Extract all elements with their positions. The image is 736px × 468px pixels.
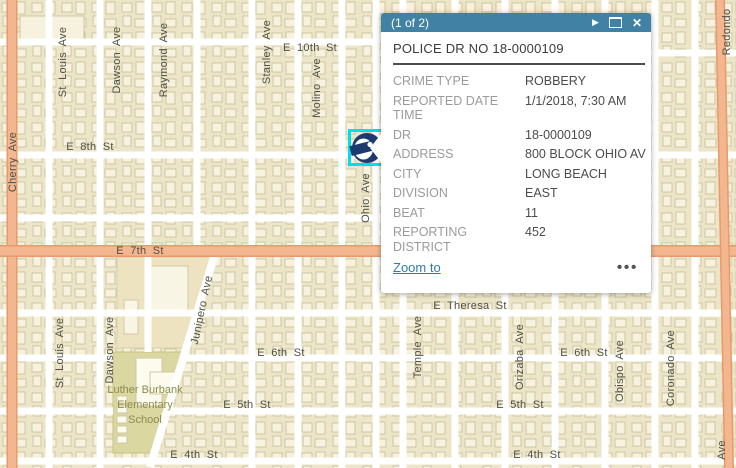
field-value: ROBBERY — [525, 74, 646, 89]
field-value: 1/1/2018, 7:30 AM — [525, 94, 646, 123]
field-label: REPORTED DATETIME — [393, 94, 525, 123]
incident-popup: (1 of 2) ▶ ✕ POLICE DR NO 18-0000109 CRI… — [381, 13, 651, 293]
field-label: CITY — [393, 167, 525, 182]
field-value: 18-0000109 — [525, 128, 646, 143]
zoom-to-link[interactable]: Zoom to — [393, 260, 441, 275]
next-feature-icon[interactable]: ▶ — [592, 18, 599, 27]
popup-callout-arrow — [370, 134, 381, 162]
popup-pagination: (1 of 2) — [391, 16, 429, 30]
field-label: REPORTING DISTRICT — [393, 225, 525, 254]
field-value: 452 — [525, 225, 646, 254]
title-divider — [393, 63, 645, 65]
field-label: CRIME TYPE — [393, 74, 525, 89]
popup-body: POLICE DR NO 18-0000109 CRIME TYPEROBBER… — [381, 32, 651, 284]
field-label: DIVISION — [393, 186, 525, 201]
field-label: DR — [393, 128, 525, 143]
field-value: LONG BEACH — [525, 167, 646, 182]
maximize-icon[interactable] — [609, 17, 622, 28]
popup-header: (1 of 2) ▶ ✕ — [381, 13, 651, 32]
popup-title: POLICE DR NO 18-0000109 — [393, 41, 645, 56]
attribute-table: CRIME TYPEROBBERYREPORTED DATETIME1/1/20… — [393, 74, 645, 254]
popup-footer: Zoom to ••• — [393, 260, 638, 275]
field-label: ADDRESS — [393, 147, 525, 162]
map-canvas[interactable]: Cherry AveSt Louis AveDawson AveRaymond … — [0, 0, 736, 468]
field-value: 11 — [525, 206, 646, 221]
field-value: EAST — [525, 186, 646, 201]
close-icon[interactable]: ✕ — [632, 17, 642, 29]
field-label: BEAT — [393, 206, 525, 221]
more-options-button[interactable]: ••• — [617, 263, 638, 273]
field-value: 800 BLOCK OHIO AV — [525, 147, 646, 162]
